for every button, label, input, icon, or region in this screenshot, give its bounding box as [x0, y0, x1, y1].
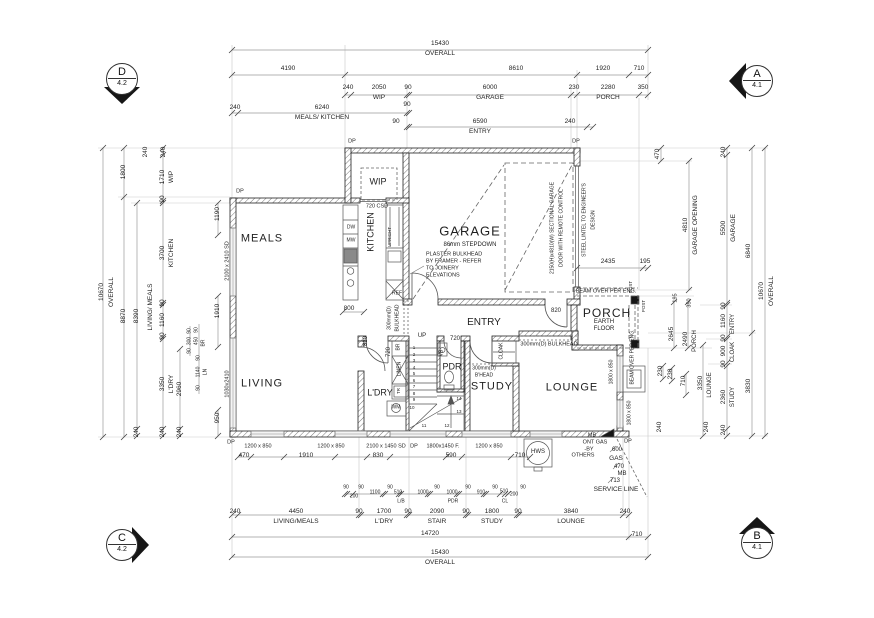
- note-label: BY FRAMER - REFER: [426, 259, 482, 265]
- window-label: DP: [227, 440, 235, 446]
- dimension-label: 590: [446, 453, 457, 460]
- divider: [108, 544, 136, 545]
- dimension-label: 910: [477, 491, 485, 496]
- note-label: 720: [450, 336, 460, 342]
- dimension-label: 1000: [417, 491, 428, 496]
- note-label: TO JOINERY: [426, 266, 459, 272]
- dimension-label: GARAGE: [476, 95, 504, 102]
- note-label: 300mm(D) BULKHEAD: [520, 342, 577, 348]
- dimension-label: 710: [632, 532, 643, 539]
- dimension-label: 450: [195, 337, 200, 345]
- dimension-label: 90: [434, 486, 440, 491]
- room-label: STUDY: [471, 382, 513, 393]
- dimension-label: WIP: [169, 171, 176, 183]
- dimension-label: 10670: [99, 283, 106, 301]
- dimension-label: 2360: [721, 390, 728, 404]
- dimension-label: 90: [404, 509, 411, 516]
- section-sheet: 4.1: [741, 82, 773, 89]
- dimension-label: 1920: [596, 66, 610, 73]
- fixture-label: REF: [392, 292, 402, 297]
- dimension-label: 3350: [698, 376, 705, 390]
- dimension-label: 470: [239, 453, 250, 460]
- dimension-label: 1160: [160, 313, 167, 327]
- dimension-label: 2280: [601, 85, 615, 92]
- fixture-label: WM: [392, 406, 401, 411]
- dimension-label: 8870: [121, 309, 128, 323]
- note-label: POST: [629, 281, 634, 293]
- note-label: POST: [642, 300, 647, 312]
- dimension-label: 470: [655, 149, 662, 160]
- section-marker-c: C 4.2: [106, 529, 138, 561]
- dimension-label: 90: [197, 355, 202, 361]
- fixture-label: TR: [397, 388, 402, 394]
- dimension-label: 1160: [721, 314, 728, 328]
- dimension-label: 90: [355, 509, 362, 516]
- dimension-label: 90: [721, 302, 728, 309]
- fixture-label: VB: [440, 350, 445, 357]
- dimension-label: 90: [403, 102, 410, 109]
- note-label: 195: [640, 259, 651, 266]
- note-label: 2435: [601, 259, 615, 266]
- dimension-label: 90: [160, 299, 167, 306]
- room-label: UP: [418, 333, 426, 339]
- window-label: 1200 x 850: [244, 444, 271, 450]
- dimension-label: LOUNGE: [557, 519, 584, 526]
- dimension-label: 900: [721, 346, 728, 357]
- dimension-label: 1710: [160, 170, 167, 184]
- service-label: 470: [614, 464, 624, 470]
- service-label: SERVICE LINE: [594, 487, 639, 494]
- dimension-label: 1140: [197, 367, 202, 378]
- stair-tread-number: 4: [413, 366, 416, 371]
- dimension-label: 90: [358, 486, 364, 491]
- dimension-label: 710: [515, 453, 526, 460]
- note-label: 820: [363, 336, 369, 346]
- dimension-label: 240: [721, 147, 728, 158]
- room-label: LOUNGE: [546, 383, 598, 394]
- room-label: MEALS: [241, 234, 283, 245]
- dimension-label: PORCH: [596, 95, 619, 102]
- room-label: KITCHEN: [367, 212, 376, 252]
- fixture-label: UPRIGHT: [388, 227, 393, 247]
- dimension-label: CLOAK: [730, 342, 736, 362]
- dimension-label: 2050: [372, 85, 386, 92]
- room-label: WIP: [370, 178, 387, 187]
- room-label: L'DRY: [367, 389, 393, 398]
- dimension-label: LOUNGE: [707, 372, 713, 397]
- dimension-label: 200: [510, 493, 518, 498]
- dimension-label: 2645: [669, 327, 676, 341]
- note-label: DOOR WITH REMOTE CONTROL: [560, 189, 565, 267]
- fixture-label: DW: [347, 226, 355, 231]
- stair-tread-number: 1: [413, 346, 416, 351]
- stair-tread-number: 5: [413, 372, 416, 377]
- dimension-label: 2490: [683, 332, 690, 346]
- section-sheet: 4.2: [106, 80, 138, 87]
- room-label: 86mm STEPDOWN: [443, 242, 496, 248]
- window-label: HWS: [531, 449, 545, 455]
- dimension-label: 90: [160, 332, 167, 339]
- dimension-label: LIVING/MEALS: [273, 519, 318, 526]
- dimension-label: 240: [721, 425, 728, 436]
- note-label: 300mm(D): [472, 367, 496, 372]
- dimension-label: 1100: [370, 491, 381, 496]
- dimension-label: PORCH: [692, 330, 698, 352]
- room-label: GARAGE: [439, 225, 501, 238]
- dimension-label: 90: [721, 360, 728, 367]
- dimension-label: L'DRY: [375, 519, 393, 526]
- divider: [108, 78, 136, 79]
- section-letter: C: [106, 532, 138, 544]
- note-label: 2150(H)x4810(W) SECTIONAL GARAGE: [551, 182, 556, 274]
- window-label: 1800x1450 F.: [426, 444, 459, 450]
- dimension-label: 14720: [421, 531, 439, 538]
- dimension-label: 1000: [446, 491, 457, 496]
- dimension-label: 8390: [134, 309, 141, 323]
- section-letter: D: [106, 66, 138, 78]
- dimension-label: GARAGE: [731, 214, 738, 242]
- dimension-label: 5500: [721, 221, 728, 235]
- dimension-label: 2090: [430, 509, 444, 516]
- dimension-label: 90: [197, 385, 202, 391]
- dimension-label: 195: [673, 293, 679, 302]
- dimension-label: 950: [215, 413, 222, 424]
- dimension-label: 3700: [160, 246, 167, 260]
- dimension-label: 90: [520, 486, 526, 491]
- dimension-label: 1910: [299, 453, 313, 460]
- dimension-label: 4190: [281, 66, 295, 73]
- dimension-label: 10670: [759, 282, 766, 300]
- stair-tread-number: 3: [413, 359, 416, 364]
- divider: [743, 542, 771, 543]
- service-label: 600: [612, 447, 622, 453]
- dimension-label: 3830: [746, 379, 753, 393]
- dimension-label: L/B: [397, 500, 405, 505]
- window-label: OTHERS: [572, 453, 595, 459]
- dimension-label: 510: [394, 491, 402, 496]
- dimension-label: 300: [188, 337, 193, 345]
- dimension-label: 1700: [377, 509, 391, 516]
- dimension-label: 240: [161, 147, 168, 158]
- divider: [743, 80, 771, 81]
- dimension-label: STAIR: [428, 519, 447, 526]
- dimension-label: ENTRY: [730, 314, 736, 334]
- section-sheet: 4.1: [741, 544, 773, 551]
- room-label: ENTRY: [467, 318, 501, 328]
- dimension-label: OVERALL: [425, 51, 455, 58]
- room-label: EARTH: [594, 319, 614, 325]
- dimension-label: 90: [387, 486, 393, 491]
- note-label: PLASTER BULKHEAD: [426, 252, 482, 258]
- dimension-label: OVERALL: [109, 277, 116, 307]
- dimension-label: 3350: [160, 377, 167, 391]
- dimension-label: 15430: [431, 550, 449, 557]
- room-label: PDR: [442, 363, 461, 372]
- stair-tread-number: 12: [444, 424, 449, 429]
- dimension-label: 1800: [121, 165, 128, 179]
- dimension-label: 710: [681, 376, 688, 387]
- stair-tread-number: 6: [413, 379, 416, 384]
- stair-tread-number: 13: [456, 410, 461, 415]
- dimension-label: 350: [687, 298, 693, 307]
- dimension-label: 230: [569, 85, 580, 92]
- dimension-label: 6590: [473, 119, 487, 126]
- section-letter: B: [741, 530, 773, 542]
- note-label: 820: [551, 308, 561, 314]
- dimension-label: 1910: [215, 304, 222, 318]
- window-label: MB: [588, 433, 596, 439]
- note-label: STEEL LINTEL TO ENGINEER'S: [583, 183, 588, 257]
- note-label: 720 CSD: [366, 204, 388, 210]
- dimension-label: 240: [230, 509, 241, 516]
- fixture-label: MW: [347, 239, 356, 244]
- dimension-label: 6840: [746, 244, 753, 258]
- section-marker-a: A 4.1: [741, 65, 773, 97]
- dimension-label: 90: [721, 334, 728, 341]
- dimension-label: 240: [343, 85, 354, 92]
- note-label: B'HEAD: [475, 374, 493, 379]
- dimension-label: 6000: [483, 85, 497, 92]
- window-label: 1200 x 850: [475, 444, 502, 450]
- dimension-label: STUDY: [481, 519, 503, 526]
- dimension-label: BR: [202, 340, 207, 347]
- dimension-label: 90: [462, 509, 469, 516]
- dimension-label: LIVING/ MEALS: [148, 284, 155, 331]
- stair-tread-number: 9: [413, 398, 416, 403]
- dimension-label: 830: [373, 453, 384, 460]
- dimension-label: 2100 x 2410 SD: [225, 241, 231, 280]
- stair-tread-number: 2: [413, 353, 416, 358]
- dimension-label: OVERALL: [769, 276, 776, 306]
- dimension-label: 90: [188, 328, 193, 334]
- dimension-label: 240: [704, 422, 711, 433]
- room-label: PORCH: [583, 307, 631, 319]
- dimension-label: 230: [658, 366, 665, 377]
- dimension-label: 240: [620, 509, 631, 516]
- dimension-label: PDR: [448, 500, 459, 505]
- stair-tread-number: 8: [413, 392, 416, 397]
- window-label: 1800 x 850: [628, 401, 633, 426]
- dimension-label: 1030x2410: [225, 370, 231, 397]
- dimension-label: 90: [392, 119, 399, 126]
- dimension-label: GARAGE OPENING: [693, 195, 700, 255]
- dimension-label: DP: [348, 139, 356, 145]
- dimension-label: 240: [177, 427, 184, 438]
- dimension-label: 240: [134, 427, 141, 438]
- dimension-label: 230: [668, 369, 675, 380]
- service-label: MB: [618, 471, 627, 477]
- section-marker-d: D 4.2: [106, 63, 138, 95]
- fixture-label: LINEN: [398, 362, 403, 377]
- window-label: 1800 x 850: [610, 360, 615, 385]
- dimension-label: 2960: [177, 382, 184, 396]
- section-marker-b: B 4.1: [741, 527, 773, 559]
- service-label: GAS: [609, 456, 623, 463]
- dimension-label: 1190: [215, 207, 222, 221]
- dimension-label: LN: [204, 369, 209, 375]
- dimension-label: WIP: [373, 95, 385, 102]
- dimension-label: 8610: [509, 66, 523, 73]
- section-sheet: 4.2: [106, 546, 138, 553]
- note-label: 300mm(D): [388, 306, 393, 330]
- dimension-label: OVERALL: [425, 560, 455, 567]
- stair-tread-number: 7: [413, 385, 416, 390]
- dimension-label: 90: [465, 486, 471, 491]
- dimension-label: 240: [160, 427, 167, 438]
- dimension-label: 4810: [683, 218, 690, 232]
- dimension-label: DP: [236, 189, 244, 195]
- dimension-label: 90: [343, 486, 349, 491]
- section-letter: A: [741, 68, 773, 80]
- dimension-label: 90: [160, 195, 167, 202]
- fixture-label: CLOAK: [500, 343, 505, 360]
- floor-plan-sheet: 15430OVERALL4190861019207102402050WIP906…: [0, 0, 874, 618]
- dimension-label: 4450: [289, 509, 303, 516]
- stair-tread-number: 14: [456, 397, 461, 402]
- dimension-label: ENTRY: [469, 129, 491, 136]
- dimension-label: 350: [638, 85, 649, 92]
- room-label: FLOOR: [594, 326, 615, 332]
- dimension-label: STUDY: [730, 387, 736, 407]
- stair-tread-number: 11: [422, 424, 427, 429]
- dimension-label: 3840: [564, 509, 578, 516]
- window-label: 1200 x 850: [317, 444, 344, 450]
- service-label: 713: [610, 478, 620, 484]
- dimension-label: MEALS/ KITCHEN: [295, 115, 349, 122]
- window-label: ONT GAS: [583, 440, 608, 446]
- stair-tread-number: 10: [409, 406, 414, 411]
- dimension-label: 6240: [315, 105, 329, 112]
- dimension-label: 240: [565, 119, 576, 126]
- dimension-label: 90: [514, 509, 521, 516]
- dimension-label: 240: [657, 422, 664, 433]
- dimension-label: 90: [195, 327, 200, 333]
- note-label: BEAM OVER PER ENG.: [631, 329, 636, 384]
- note-label: DESIGN: [592, 210, 597, 229]
- note-label: BULKHEAD: [396, 305, 401, 332]
- note-label: 720: [386, 347, 392, 357]
- dimension-label: 90: [492, 486, 498, 491]
- dimension-label: 90: [404, 85, 411, 92]
- fixture-label: BR: [397, 344, 402, 351]
- dimension-label: 710: [634, 66, 645, 73]
- note-label: 800: [344, 306, 355, 313]
- window-label: DP: [410, 444, 418, 450]
- dimension-label: 90: [188, 348, 193, 354]
- dimension-label: 510: [500, 490, 508, 495]
- dimension-label: 200: [350, 495, 358, 500]
- note-label: ELEVATIONS: [426, 273, 460, 279]
- room-label: LIVING: [241, 379, 283, 390]
- window-label: 2100 x 1450 SD: [366, 444, 405, 450]
- dimension-label: L'DRY: [169, 375, 176, 393]
- dimension-label: CL: [502, 500, 508, 505]
- dimension-label: 1800: [485, 509, 499, 516]
- dimension-label: 240: [143, 147, 150, 158]
- dimension-label: 15430: [431, 41, 449, 48]
- dimension-label: DP: [572, 139, 580, 145]
- dimension-label: 240: [230, 105, 241, 112]
- dimension-label: KITCHEN: [169, 239, 176, 268]
- window-label: DP: [624, 439, 632, 445]
